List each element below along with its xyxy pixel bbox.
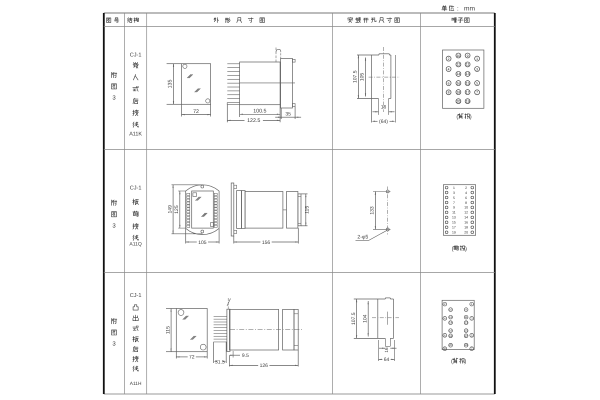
svg-text:12: 12 <box>464 211 468 215</box>
svg-text:13: 13 <box>452 216 456 220</box>
svg-text:2: 2 <box>465 186 467 190</box>
svg-text:7: 7 <box>476 91 478 95</box>
svg-text:5: 5 <box>476 81 478 85</box>
svg-text:122.5: 122.5 <box>247 118 260 124</box>
svg-text:14: 14 <box>457 72 461 76</box>
svg-text:125: 125 <box>174 205 180 214</box>
svg-text:6: 6 <box>448 81 450 85</box>
svg-text:20: 20 <box>464 231 468 235</box>
svg-text:CJ-1: CJ-1 <box>130 293 142 299</box>
svg-text:13: 13 <box>465 322 468 325</box>
svg-text:A11Q: A11Q <box>129 242 142 248</box>
svg-text:18: 18 <box>457 90 461 94</box>
svg-text:16: 16 <box>384 347 389 353</box>
svg-text:10: 10 <box>449 309 452 312</box>
svg-text:A11K: A11K <box>129 132 142 138</box>
svg-text:9.5: 9.5 <box>242 353 249 359</box>
svg-text:135: 135 <box>168 80 174 89</box>
svg-text:15: 15 <box>452 221 456 225</box>
svg-text:8: 8 <box>465 201 467 205</box>
svg-text:9: 9 <box>467 54 469 58</box>
svg-text:19: 19 <box>466 99 470 103</box>
svg-text:17: 17 <box>452 226 456 230</box>
svg-text:14: 14 <box>449 322 452 325</box>
svg-text:CJ-1: CJ-1 <box>130 53 142 59</box>
svg-text:15: 15 <box>466 81 470 85</box>
svg-text:mm: mm <box>464 6 475 13</box>
svg-text:2-φ5: 2-φ5 <box>357 235 368 241</box>
svg-text:8: 8 <box>448 91 450 95</box>
svg-text:105: 105 <box>360 73 366 82</box>
svg-text:10: 10 <box>464 206 468 210</box>
svg-text:16: 16 <box>457 81 461 85</box>
svg-text:72: 72 <box>193 109 199 115</box>
svg-text:A11H: A11H <box>130 381 142 387</box>
svg-text:107.5: 107.5 <box>353 70 359 83</box>
svg-text:17: 17 <box>466 90 470 94</box>
svg-text:115: 115 <box>165 326 171 334</box>
svg-text:4: 4 <box>465 191 467 195</box>
svg-text:12: 12 <box>457 63 461 67</box>
svg-text:133: 133 <box>370 206 376 215</box>
svg-text:16: 16 <box>449 330 452 333</box>
svg-text:105: 105 <box>198 240 207 246</box>
svg-text:11: 11 <box>466 63 470 67</box>
svg-text:): ) <box>465 245 467 252</box>
svg-text:): ) <box>470 113 472 120</box>
svg-text:64: 64 <box>384 357 390 363</box>
svg-text:16: 16 <box>464 221 468 225</box>
svg-text:18: 18 <box>464 226 468 230</box>
svg-text:(64): (64) <box>379 119 388 125</box>
svg-text:13: 13 <box>466 72 470 76</box>
svg-text:126: 126 <box>260 363 269 369</box>
svg-text:20: 20 <box>449 344 452 347</box>
svg-text:19: 19 <box>452 231 456 235</box>
svg-text:20: 20 <box>457 99 461 103</box>
svg-text:1: 1 <box>476 57 478 61</box>
svg-text:16: 16 <box>381 104 387 110</box>
svg-text:5: 5 <box>453 196 455 200</box>
svg-text:1: 1 <box>453 186 455 190</box>
svg-text:18: 18 <box>449 335 452 338</box>
svg-text:3: 3 <box>453 191 455 195</box>
svg-text:12: 12 <box>449 316 452 319</box>
svg-text:149: 149 <box>167 205 173 214</box>
svg-text:72: 72 <box>189 355 195 361</box>
svg-text:104: 104 <box>362 314 368 323</box>
svg-text:3: 3 <box>476 67 478 71</box>
svg-text:): ) <box>464 358 466 365</box>
svg-text:10: 10 <box>457 54 461 58</box>
svg-text:11: 11 <box>452 211 456 215</box>
svg-text:2: 2 <box>448 57 450 61</box>
svg-text:35: 35 <box>285 112 291 118</box>
svg-text:6: 6 <box>465 196 467 200</box>
svg-text:CJ-1: CJ-1 <box>130 186 142 192</box>
svg-text:14: 14 <box>464 216 468 220</box>
svg-text:4: 4 <box>448 67 450 71</box>
svg-text:156: 156 <box>262 240 271 246</box>
svg-text:107.5: 107.5 <box>351 312 357 325</box>
svg-text:15: 15 <box>465 330 468 333</box>
svg-text:31.5: 31.5 <box>215 359 225 365</box>
svg-text:7: 7 <box>453 201 455 205</box>
svg-text:115: 115 <box>305 206 311 214</box>
svg-text:9: 9 <box>453 206 455 210</box>
svg-text:100.5: 100.5 <box>253 109 266 115</box>
svg-text:17: 17 <box>465 335 468 338</box>
svg-text:19: 19 <box>465 344 468 347</box>
